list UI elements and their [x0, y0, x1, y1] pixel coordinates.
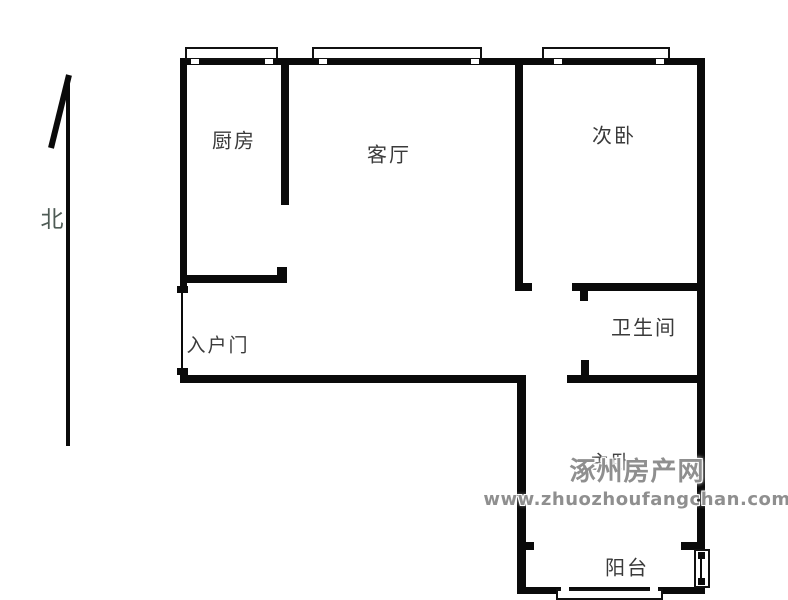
- north-arrow-icon: [35, 66, 85, 456]
- balcony-window-icon: [556, 589, 663, 600]
- entry-door-opening: [181, 293, 183, 368]
- balcony-side-window-pane: [698, 578, 705, 585]
- wall-balcony-stub-left: [517, 542, 534, 550]
- secondary-bedroom-label: 次卧: [592, 120, 636, 149]
- wall-hallway-bottom: [180, 375, 526, 383]
- wall-kitchen-bottom: [180, 275, 287, 283]
- living-room-window-pane: [319, 59, 327, 64]
- watermark-site-name: 涿州房产网: [483, 451, 788, 488]
- kitchen-window-pane: [191, 59, 199, 64]
- bathroom-door-jamb-bottom: [581, 360, 589, 375]
- balcony-label: 阳台: [605, 552, 649, 581]
- wall-bathroom-top: [572, 283, 705, 291]
- watermark-site-url: www.zhuozhoufangchan.com: [483, 489, 788, 510]
- wall-bathroom-bottom: [567, 375, 705, 383]
- kitchen-door-jamb: [277, 267, 287, 276]
- balcony-window-pane: [561, 586, 569, 591]
- balcony-window-pane: [650, 586, 658, 591]
- bathroom-door-jamb-top: [580, 291, 588, 301]
- bedroom2-window-pane: [554, 59, 562, 64]
- living-room-window-icon: [312, 47, 482, 60]
- watermark: 涿州房产网 www.zhuozhoufangchan.com: [483, 451, 788, 510]
- wall-living-bedroom2: [515, 58, 523, 284]
- entry-door-label: 入户门: [186, 331, 249, 358]
- kitchen-window-pane: [265, 59, 273, 64]
- wall-kitchen-right: [281, 58, 289, 205]
- wall-left-exterior: [180, 58, 187, 286]
- entry-door-jamb-top: [177, 286, 188, 293]
- balcony-side-window-pane: [698, 552, 705, 559]
- entry-door-jamb-bottom: [177, 368, 188, 375]
- bedroom2-window-pane: [656, 59, 664, 64]
- balcony-side-window-frame: [700, 559, 702, 578]
- bathroom-label: 卫生间: [611, 312, 677, 341]
- living-room-label: 客厅: [367, 139, 411, 168]
- kitchen-label: 厨房: [212, 125, 256, 154]
- wall-living-bedroom2-cap: [515, 283, 532, 291]
- north-label: 北: [41, 200, 64, 234]
- floor-plan-canvas: 北 厨房 客厅 次卧 入户门 卫生间 主卧 阳台 涿州房产网 www.zhuoz: [0, 0, 788, 600]
- living-room-window-pane: [471, 59, 479, 64]
